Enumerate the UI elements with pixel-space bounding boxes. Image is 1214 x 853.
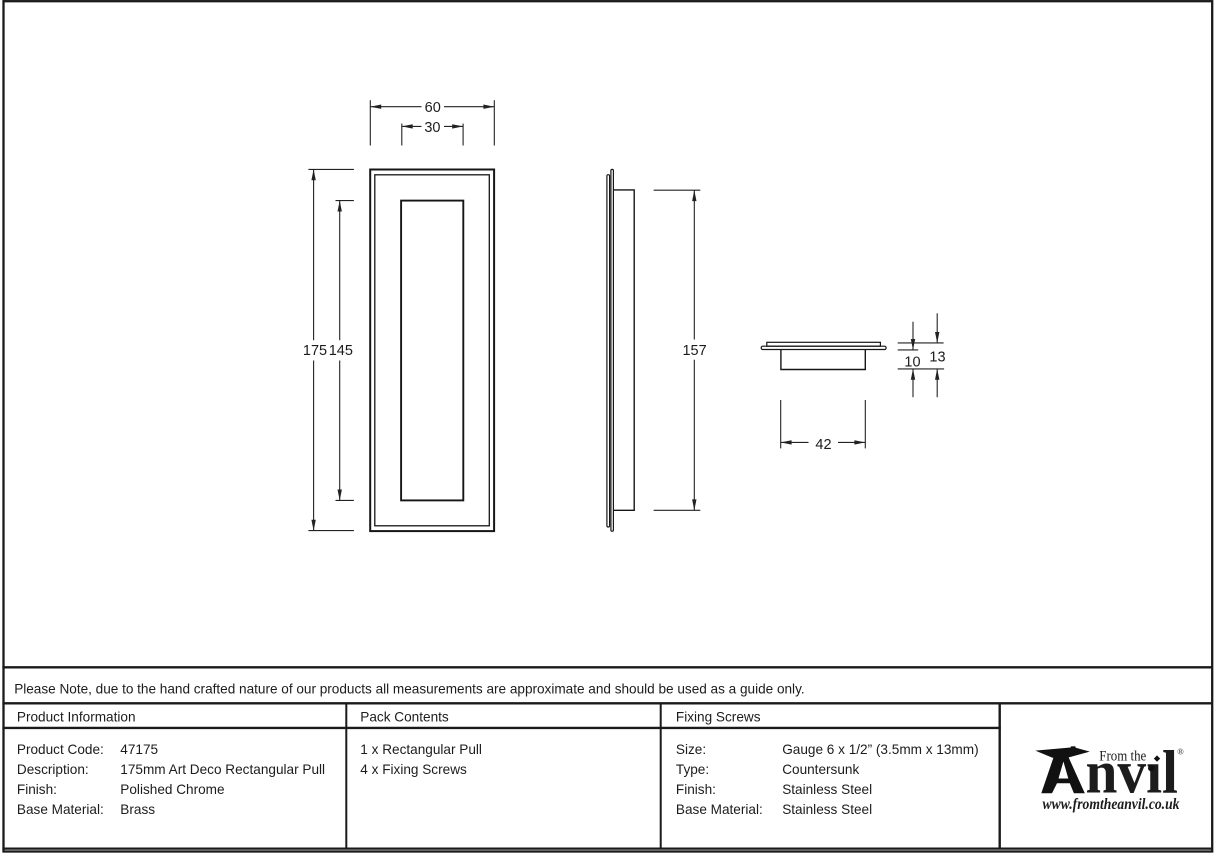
svg-text:175mm Art Deco Rectangular Pul: 175mm Art Deco Rectangular Pull: [120, 762, 325, 777]
svg-text:Stainless Steel: Stainless Steel: [782, 802, 872, 817]
svg-text:Product Code:: Product Code:: [17, 742, 104, 757]
svg-text:Finish:: Finish:: [17, 782, 57, 797]
svg-text:60: 60: [425, 100, 441, 116]
svg-text:Description:: Description:: [17, 762, 89, 777]
svg-text:Stainless Steel: Stainless Steel: [782, 782, 872, 797]
svg-text:10: 10: [904, 354, 920, 370]
svg-text:Please Note, due to the hand c: Please Note, due to the hand crafted nat…: [14, 681, 804, 696]
svg-text:Base Material:: Base Material:: [676, 802, 763, 817]
svg-text:13: 13: [929, 349, 945, 365]
svg-text:Gauge 6 x 1/2” (3.5mm x 13mm): Gauge 6 x 1/2” (3.5mm x 13mm): [782, 742, 978, 757]
svg-text:Base Material:: Base Material:: [17, 802, 104, 817]
svg-text:Type:: Type:: [676, 762, 709, 777]
svg-text:Brass: Brass: [120, 802, 155, 817]
svg-text:175: 175: [303, 343, 327, 359]
svg-text:Fixing Screws: Fixing Screws: [676, 710, 761, 725]
svg-text:30: 30: [424, 120, 440, 136]
svg-text:From the: From the: [1099, 748, 1146, 764]
svg-text:1 x Rectangular Pull: 1 x Rectangular Pull: [360, 742, 482, 757]
svg-text:®: ®: [1177, 746, 1184, 756]
svg-text:42: 42: [815, 437, 831, 453]
svg-text:www.fromtheanvil.co.uk: www.fromtheanvil.co.uk: [1043, 796, 1180, 813]
svg-text:47175: 47175: [120, 742, 158, 757]
svg-text:Finish:: Finish:: [676, 782, 716, 797]
svg-text:145: 145: [329, 343, 353, 359]
svg-text:Polished Chrome: Polished Chrome: [120, 782, 224, 797]
svg-text:Countersunk: Countersunk: [782, 762, 859, 777]
svg-text:Pack Contents: Pack Contents: [360, 710, 449, 725]
svg-text:Size:: Size:: [676, 742, 706, 757]
svg-text:157: 157: [682, 343, 706, 359]
svg-text:4 x Fixing Screws: 4 x Fixing Screws: [360, 762, 467, 777]
svg-text:Product Information: Product Information: [17, 710, 136, 725]
